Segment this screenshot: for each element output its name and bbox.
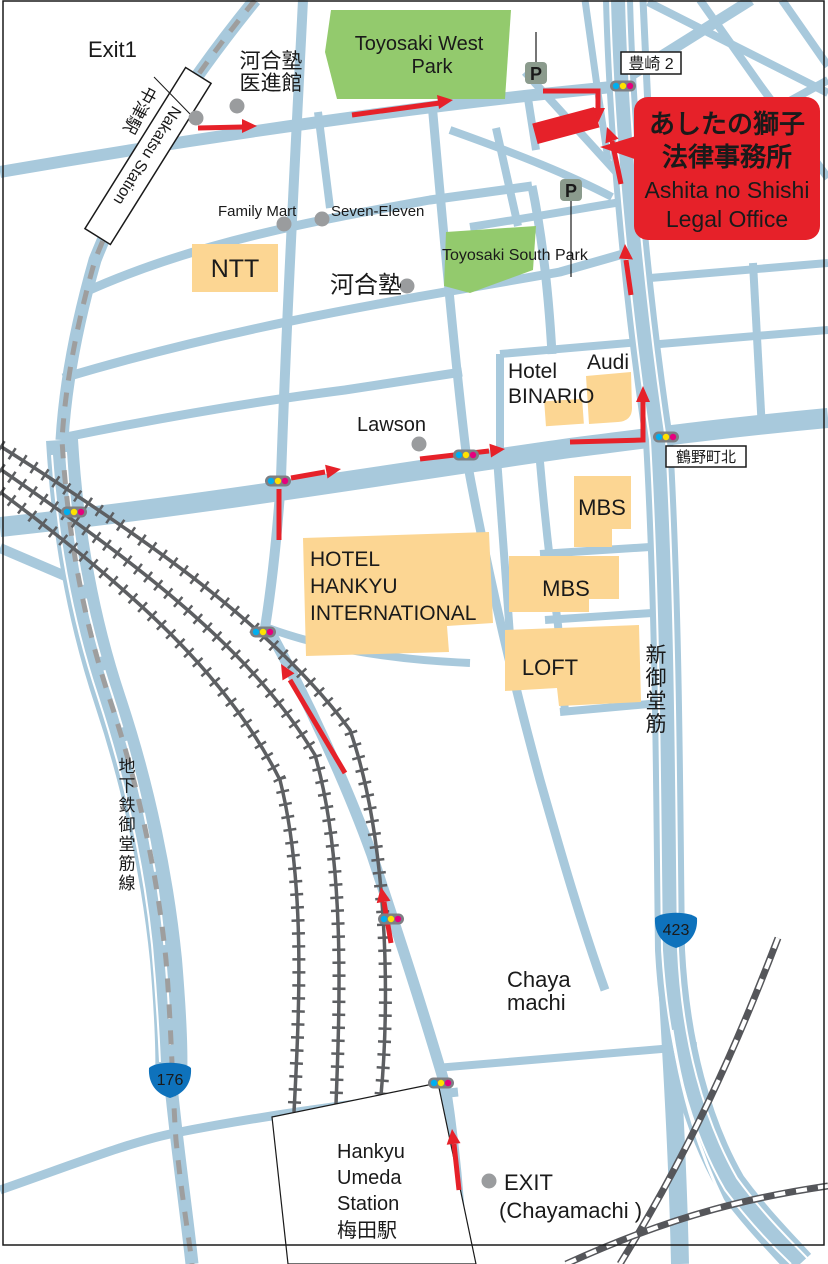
label-hankyu-umeda: Hankyu xyxy=(337,1141,405,1163)
road xyxy=(753,263,762,430)
label-shin-midosuji: 新御堂筋 xyxy=(646,644,667,736)
traffic-signal-icon xyxy=(265,476,291,487)
label-exit-chayamachi: EXIT xyxy=(504,1170,553,1195)
shield-number: 423 xyxy=(663,922,690,939)
parking-icon: P xyxy=(560,179,582,201)
label-hankyu-umeda: Station xyxy=(337,1193,399,1215)
label-seven-eleven: Seven-Eleven xyxy=(331,203,424,220)
callout-title-jp: 法律事務所 xyxy=(662,142,792,172)
parking-letter: P xyxy=(530,64,542,84)
label-chayamachi: machi xyxy=(507,990,566,1015)
traffic-signal-icon xyxy=(453,450,479,461)
label-audi: Audi xyxy=(587,351,629,374)
map-canvas: P P Exit1 Nakatsu Station 中津駅 河合塾 医進館 To… xyxy=(0,0,828,1264)
label-hankyu-umeda: Umeda xyxy=(337,1167,402,1189)
intersection-label-tsurunocho-kita: 鶴野町北 xyxy=(666,446,746,467)
shield-number: 176 xyxy=(157,1072,184,1089)
label-exit-chayamachi: (Chayamachi ) xyxy=(499,1198,642,1223)
label-toyosaki-west-park: Toyosaki West xyxy=(355,33,484,55)
label-hotel-hankyu-international: HANKYU xyxy=(310,575,398,598)
poi-dot xyxy=(412,437,427,452)
route-shield-176: 176 xyxy=(149,1063,191,1098)
poi-dot xyxy=(315,212,330,227)
label-kawaijuku-medical: 医進館 xyxy=(240,72,303,95)
route-segment xyxy=(198,127,243,128)
road xyxy=(436,1046,697,1068)
label-chayamachi: Chaya xyxy=(507,967,571,992)
road xyxy=(540,547,650,554)
poi-dot xyxy=(230,99,245,114)
label-hotel-hankyu-international: HOTEL xyxy=(310,548,380,571)
traffic-signal-icon xyxy=(428,1078,454,1089)
label-tsurunocho-kita: 鶴野町北 xyxy=(676,449,736,466)
label-toyosaki-south-park: Toyosaki South Park xyxy=(442,247,589,264)
access-map: P P Exit1 Nakatsu Station 中津駅 河合塾 医進館 To… xyxy=(0,0,828,1264)
label-exit1: Exit1 xyxy=(88,37,137,62)
label-kawaijuku-medical: 河合塾 xyxy=(240,50,303,73)
road xyxy=(545,613,652,620)
label-hankyu-umeda: 梅田駅 xyxy=(337,1219,397,1242)
traffic-signal-icon xyxy=(378,914,404,925)
label-mbs-1: MBS xyxy=(578,495,626,520)
label-subway-midosuji-line: 地下鉄御堂筋線 xyxy=(119,757,136,893)
label-toyosaki2: 豊崎 2 xyxy=(628,55,673,73)
poi-dot xyxy=(189,111,204,126)
label-loft: LOFT xyxy=(522,655,578,680)
road xyxy=(648,330,828,345)
parking-letter: P xyxy=(565,181,577,201)
road xyxy=(470,201,627,227)
traffic-signal-icon xyxy=(61,507,87,518)
traffic-signal-icon xyxy=(653,432,679,443)
label-mbs-2: MBS xyxy=(542,576,590,601)
label-toyosaki-west-park: Park xyxy=(411,56,453,78)
intersection-label-toyosaki2: 豊崎 2 xyxy=(621,52,681,74)
road xyxy=(782,0,828,66)
callout-title-en: Ashita no Shishi xyxy=(645,177,810,203)
label-hotel-binario: BINARIO xyxy=(508,385,594,408)
parking-icon: P xyxy=(525,62,547,84)
label-ntt: NTT xyxy=(211,255,260,283)
traffic-signal-icon xyxy=(250,627,276,638)
road xyxy=(650,263,828,278)
label-kawaijuku: 河合塾 xyxy=(330,272,402,299)
label-lawson: Lawson xyxy=(357,414,426,436)
callout-title-jp: あしたの獅子 xyxy=(649,109,805,139)
label-hotel-hankyu-international: INTERNATIONAL xyxy=(310,602,476,625)
callout-title-en: Legal Office xyxy=(666,206,788,232)
traffic-signal-icon xyxy=(610,81,636,92)
poi-dot xyxy=(482,1174,497,1189)
label-family-mart: Family Mart xyxy=(218,203,297,220)
label-hotel-binario: Hotel xyxy=(508,360,557,383)
road xyxy=(496,128,518,226)
